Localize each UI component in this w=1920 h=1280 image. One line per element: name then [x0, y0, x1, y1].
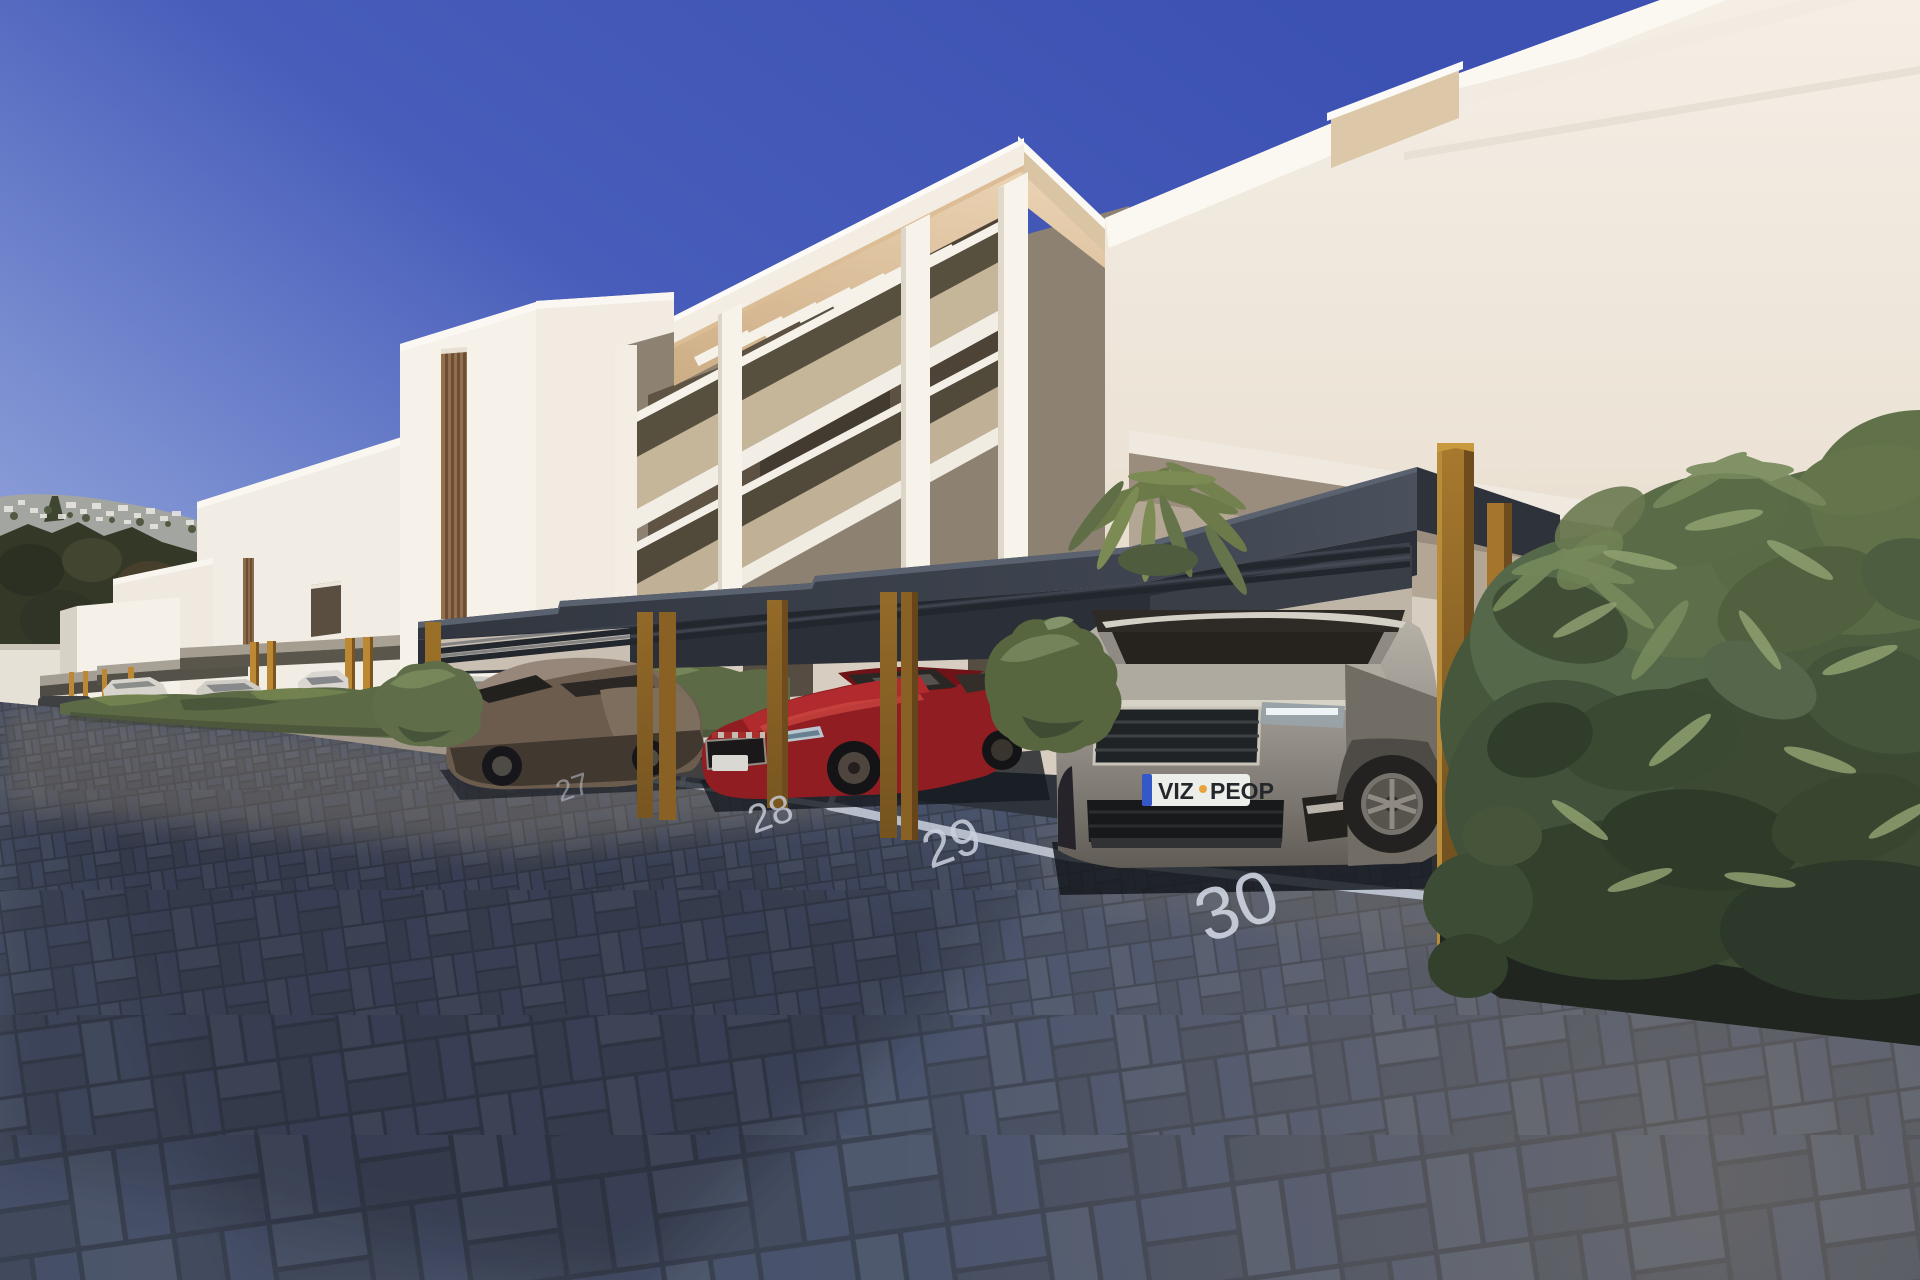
svg-text:VIZ: VIZ: [1158, 778, 1194, 804]
svg-text:PEOP: PEOP: [1210, 778, 1274, 804]
